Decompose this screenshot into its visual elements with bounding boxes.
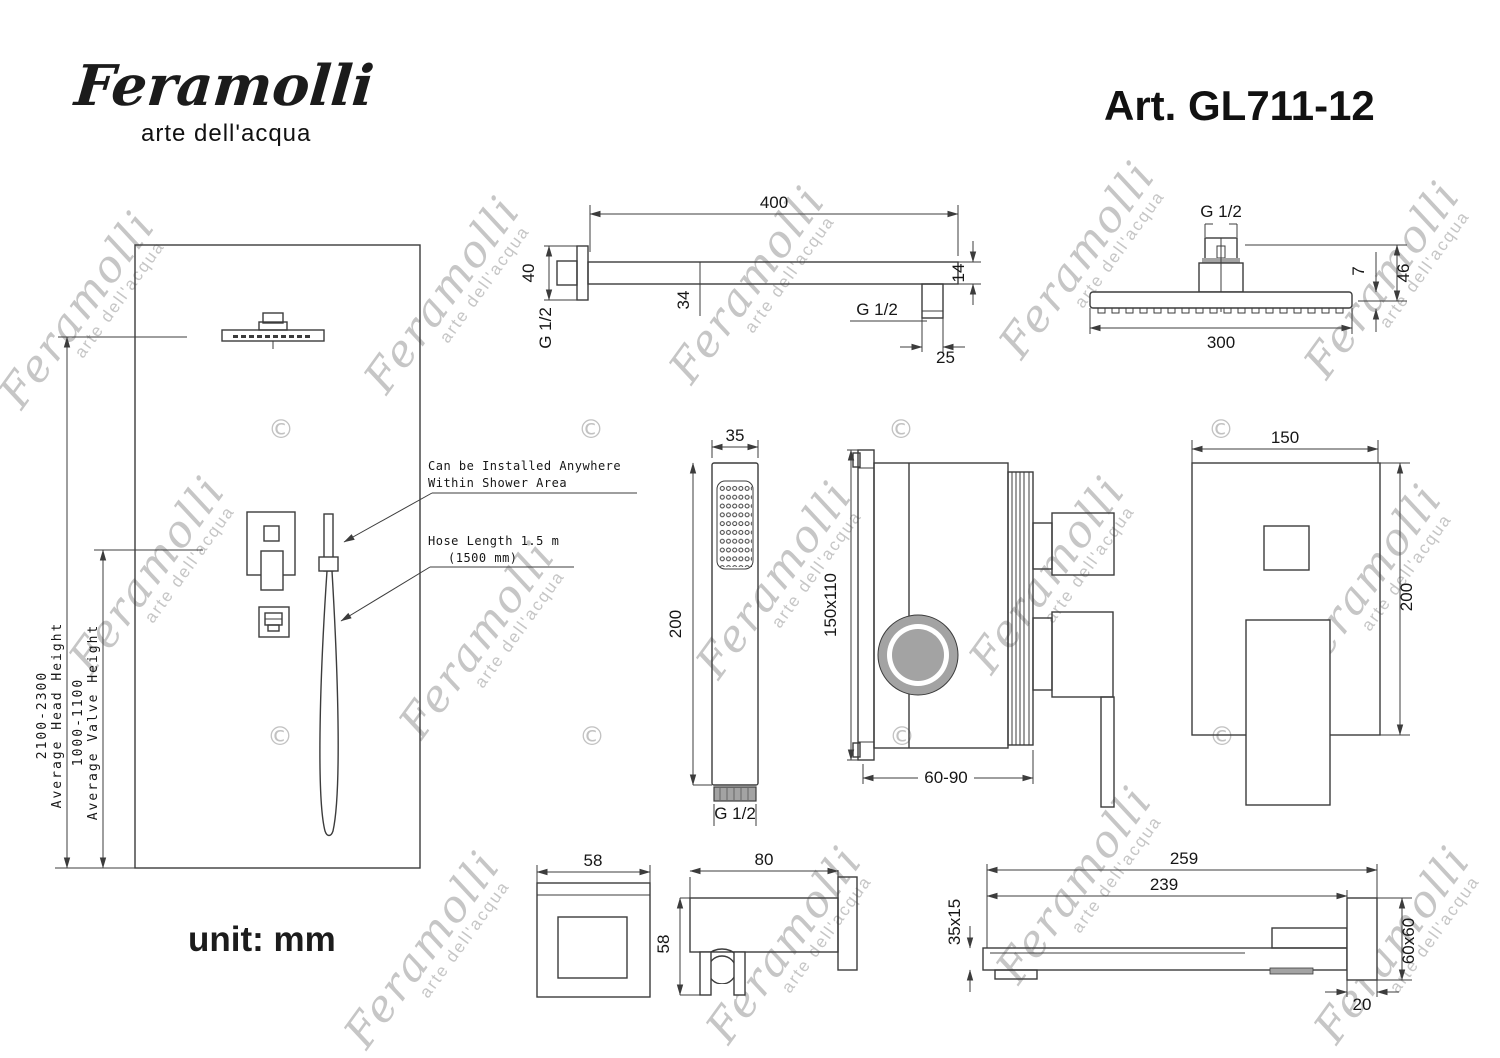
holder-side-drawing: 80 58 — [654, 850, 857, 999]
head-height-range: 2100-2300 — [35, 671, 50, 759]
arm-end-thread: G 1/2 — [856, 300, 898, 319]
trim-plate-drawing: 150 200 — [1192, 428, 1416, 805]
plate-width-dim: 150 — [1271, 428, 1299, 447]
arm-length-dim: 400 — [760, 193, 788, 212]
handshower-note-line2: Within Shower Area — [428, 476, 567, 490]
hand-shower-drawing: 35 200 G 1/2 — [666, 426, 758, 826]
holder-height-dim: 58 — [654, 935, 673, 954]
arm-end-width-dim: 25 — [936, 348, 955, 367]
mixer-roughin-dim: 150x110 — [821, 573, 840, 637]
handshower-length-dim: 200 — [666, 610, 685, 638]
mixer-valve-drawing: 150x110 60-90 — [821, 450, 1114, 807]
handshower-note-line1: Can be Installed Anywhere — [428, 459, 621, 473]
head-width-dim: 300 — [1207, 333, 1235, 352]
hose-note-line2: (1500 mm) — [448, 551, 518, 565]
arm-wall-thread: G 1/2 — [536, 307, 555, 349]
spout-total-length-dim: 259 — [1170, 849, 1198, 868]
mixer-depth-dim: 60-90 — [924, 768, 967, 787]
handshower-thread: G 1/2 — [714, 804, 756, 823]
spray-face — [719, 484, 752, 567]
holder-front-drawing: 58 — [537, 851, 650, 997]
plate-height-dim: 200 — [1397, 583, 1416, 611]
handshower-width-dim: 35 — [726, 426, 745, 445]
hose-note-line1: Hose Length 1.5 m — [428, 534, 559, 548]
holder-width-dim: 58 — [584, 851, 603, 870]
head-plate-thickness-dim: 7 — [1349, 266, 1368, 275]
holder-depth-dim: 80 — [755, 850, 774, 869]
arm-flange-dim: 40 — [519, 264, 538, 283]
spout-drawing: 259 239 35x15 60x60 20 — [945, 849, 1418, 1014]
spout-flange-depth-dim: 20 — [1353, 995, 1372, 1014]
arm-end-height-dim: 14 — [949, 264, 968, 283]
head-thread: G 1/2 — [1200, 202, 1242, 221]
spout-profile-dim: 35x15 — [945, 899, 964, 945]
valve-height-label: Average Valve Height — [86, 624, 101, 821]
arm-offset-dim: 34 — [674, 291, 693, 310]
shower-arm-drawing: 400 40 G 1/2 34 G 1/2 14 25 — [519, 193, 981, 367]
shower-head-drawing: G 1/2 30 — [1090, 202, 1413, 352]
head-height-dim: 46 — [1394, 264, 1413, 283]
technical-sheet: Feramolliarte dell'acqua Feramolliarte d… — [0, 0, 1500, 1058]
spout-body-length-dim: 239 — [1150, 875, 1178, 894]
valve-height-range: 1000-1100 — [71, 678, 86, 766]
head-height-label: Average Head Height — [50, 622, 65, 809]
spout-flange-dim: 60x60 — [1399, 918, 1418, 964]
drawing-canvas: 2100-2300 Average Head Height 1000-1100 … — [0, 0, 1500, 1058]
